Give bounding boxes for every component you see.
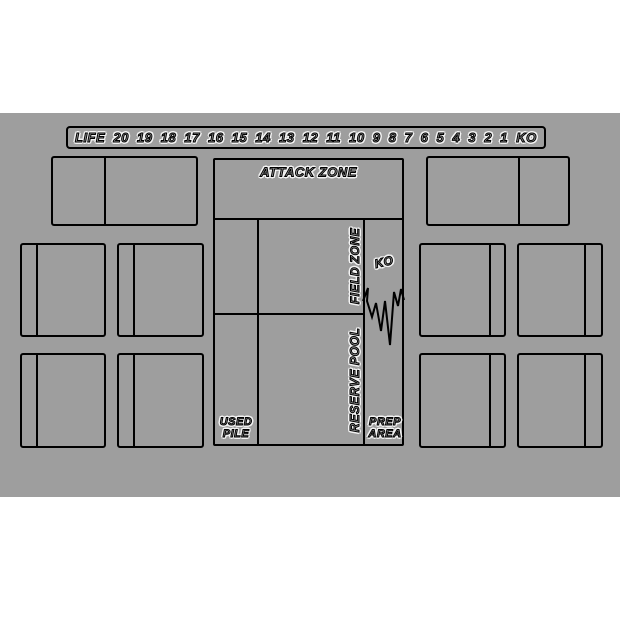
life-value: 1	[500, 130, 508, 145]
top-right-double-card-slot	[426, 156, 570, 226]
top-left-double-card-slot	[51, 156, 198, 226]
life-value: 20	[113, 130, 128, 145]
slot-strip-divider	[584, 245, 586, 335]
used-pile-label: USED PILE	[220, 417, 253, 441]
playmat: LIFE 2019181716151413121110987654321KO	[0, 113, 620, 497]
slot-strip-divider	[133, 245, 135, 335]
central-play-area: ATTACK ZONE FIELD ZONE RESERVE POOL KO U…	[213, 158, 404, 446]
left-card-slot-2	[117, 243, 204, 337]
life-value: 18	[161, 130, 176, 145]
slot-strip-divider	[36, 355, 38, 446]
life-value: 16	[208, 130, 223, 145]
left-card-slot-3	[20, 353, 106, 448]
slot-strip-divider	[584, 355, 586, 446]
life-value: 7	[405, 130, 413, 145]
right-card-slot-4	[517, 353, 603, 448]
attack-zone-divider	[215, 218, 402, 220]
life-value: 5	[437, 130, 445, 145]
slot-strip-divider	[489, 355, 491, 446]
slot-divider	[104, 158, 106, 224]
life-value: 12	[303, 130, 318, 145]
right-card-slot-3	[419, 353, 506, 448]
life-value: 9	[373, 130, 381, 145]
left-card-slot-1	[20, 243, 106, 337]
slot-strip-divider	[36, 245, 38, 335]
life-value: 10	[349, 130, 364, 145]
life-value: 4	[452, 130, 460, 145]
life-track: LIFE 2019181716151413121110987654321KO	[66, 126, 546, 149]
used-pile-column-divider	[257, 218, 259, 444]
life-value: 14	[255, 130, 270, 145]
slot-strip-divider	[489, 245, 491, 335]
prep-area-label: PREP AREA	[368, 417, 401, 441]
life-value: 17	[184, 130, 199, 145]
slot-strip-divider	[133, 355, 135, 446]
attack-zone-label: ATTACK ZONE	[260, 165, 357, 180]
right-card-slot-2	[517, 243, 603, 337]
prep-column-divider	[363, 218, 365, 444]
right-card-slot-1	[419, 243, 506, 337]
life-value: 8	[389, 130, 397, 145]
life-value: KO	[516, 130, 537, 145]
field-zone-label: FIELD ZONE	[348, 228, 362, 304]
life-value: 2	[484, 130, 492, 145]
ko-zone-label: KO	[373, 253, 395, 271]
life-value: 19	[137, 130, 152, 145]
life-value: 11	[326, 130, 341, 145]
life-value: 15	[232, 130, 247, 145]
left-card-slot-4	[117, 353, 204, 448]
slot-divider	[518, 158, 520, 224]
field-reserve-divider	[215, 313, 365, 315]
life-label: LIFE	[75, 130, 105, 145]
life-value: 13	[279, 130, 294, 145]
life-value: 6	[421, 130, 429, 145]
life-value: 3	[468, 130, 476, 145]
reserve-pool-label: RESERVE POOL	[348, 328, 362, 433]
